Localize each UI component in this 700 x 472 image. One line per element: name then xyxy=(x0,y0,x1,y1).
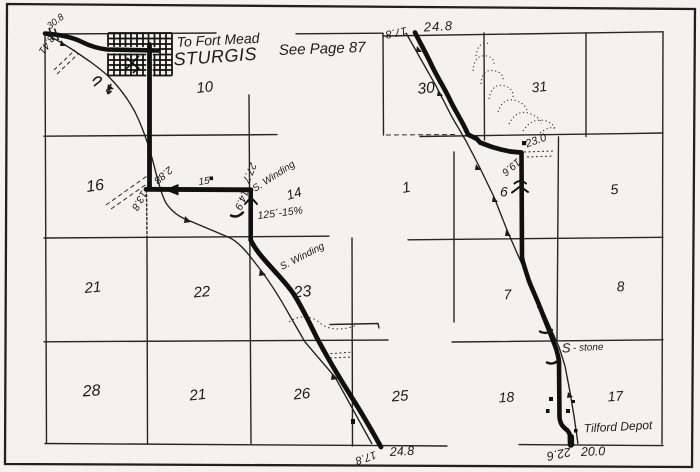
svg-text:24.8: 24.8 xyxy=(388,444,414,459)
svg-text:30: 30 xyxy=(417,79,436,98)
svg-text:- stone: - stone xyxy=(573,342,604,354)
svg-text:21: 21 xyxy=(83,279,102,297)
svg-text:15: 15 xyxy=(198,175,211,188)
svg-text:17: 17 xyxy=(607,387,625,404)
svg-text:24.8: 24.8 xyxy=(422,18,453,35)
svg-text:22: 22 xyxy=(192,283,212,302)
svg-text:31: 31 xyxy=(531,78,548,96)
svg-text:21: 21 xyxy=(188,386,207,405)
svg-text:25: 25 xyxy=(390,387,409,405)
svg-text:See Page 87: See Page 87 xyxy=(279,39,367,59)
svg-text:23: 23 xyxy=(292,283,312,302)
svg-text:10: 10 xyxy=(196,78,215,97)
svg-text:20.0: 20.0 xyxy=(580,444,606,459)
svg-text:18: 18 xyxy=(498,388,515,405)
svg-text:26: 26 xyxy=(292,385,312,404)
svg-text:6: 6 xyxy=(500,184,508,200)
svg-text:16: 16 xyxy=(85,177,105,196)
svg-text:28: 28 xyxy=(81,382,101,400)
svg-text:S: S xyxy=(562,340,572,355)
svg-text:8: 8 xyxy=(616,278,625,295)
